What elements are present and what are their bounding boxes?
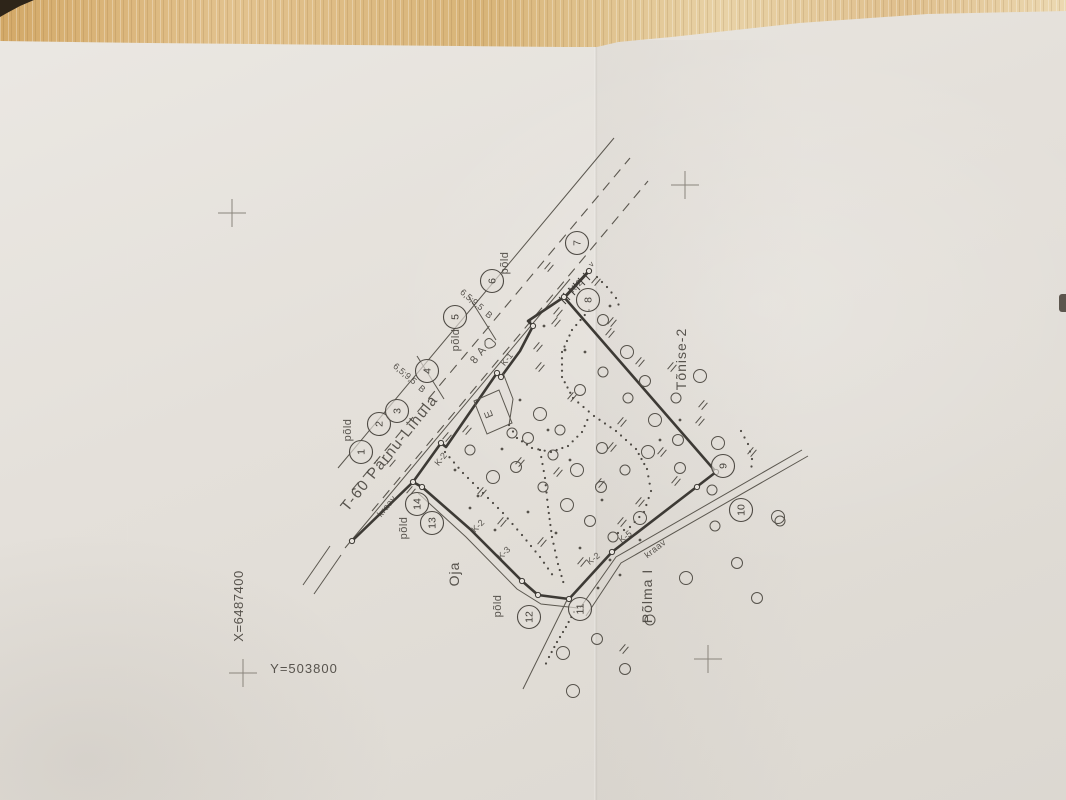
ditch-dot [588, 410, 590, 412]
ditch-dot [615, 430, 617, 432]
dot-symbol [639, 539, 642, 542]
tree-circle-symbol [710, 521, 720, 531]
ditch-dot [467, 477, 469, 479]
grass-mark-symbol [592, 276, 601, 285]
tree-circle-symbol [620, 664, 631, 675]
ditch-dot [747, 443, 749, 445]
tree-circle-symbol [487, 471, 500, 484]
grid-cross [229, 659, 257, 687]
vertex-marker [561, 294, 566, 299]
ditch-dot [564, 381, 566, 383]
ditch-dot [567, 445, 569, 447]
tree-circle-symbol [465, 445, 475, 455]
boundary-point-6: 6 [481, 270, 504, 293]
secondary-road-edge-1 [580, 450, 802, 608]
ditch-dot [572, 440, 574, 442]
dot-symbol [469, 507, 472, 510]
label-grid-y-label: Y=503800 [270, 661, 338, 676]
vertex-marker [349, 538, 354, 543]
dot-symbol [579, 547, 582, 550]
ditch-dot [448, 456, 450, 458]
grass-mark-symbol [618, 517, 627, 526]
ditch-dot [462, 472, 464, 474]
point-number: 5 [450, 314, 462, 320]
tree-circle-symbol [557, 647, 570, 660]
ditch-dot [525, 539, 527, 541]
ditch-dot [561, 370, 563, 372]
ditch-dot [571, 329, 573, 331]
label-property-name-tonise: Tõnise-2 [673, 328, 689, 390]
point-number: 6 [487, 278, 499, 284]
ditch-dot [544, 450, 546, 452]
grass-mark-symbol [568, 392, 577, 401]
ditch-dot [562, 631, 564, 633]
ditch-dot [551, 651, 553, 653]
ditch-dot [606, 286, 608, 288]
ditch-dot [584, 425, 586, 427]
boundary-point-10: 10 [730, 499, 753, 522]
tree-circle-symbol [507, 428, 517, 438]
label-property-name-polma: Põlma I [639, 569, 655, 623]
ditch-dot [502, 512, 504, 514]
tree-circle-symbol [673, 435, 684, 446]
tree-circle-symbol [598, 315, 609, 326]
ditch-dot [561, 357, 563, 359]
grass-mark-symbol [554, 307, 563, 316]
boundary-point-8: 8 [577, 289, 600, 312]
ditch-dot [497, 507, 499, 509]
ditch-dot [548, 512, 550, 514]
label-field-label-1: põld [342, 419, 354, 442]
ditch-dot [576, 436, 578, 438]
point-number: 4 [422, 368, 434, 374]
boundary-point-7: 7 [566, 232, 589, 255]
dot-symbol [527, 511, 530, 514]
label-culvert-note: v [587, 260, 596, 269]
ditch-dot [550, 530, 552, 532]
ditch-dot [553, 646, 555, 648]
ditch-dot [568, 621, 570, 623]
point-number: 12 [524, 611, 536, 623]
ditch-dot [539, 556, 541, 558]
label-grid-x-label: X=6487400 [231, 570, 246, 641]
label-field-label-4: põld [398, 517, 410, 540]
label-road-surface-note-2: B [483, 309, 494, 321]
label-field-label-5: põld [492, 595, 504, 618]
label-ditch-text-kraav-2: kraav [642, 537, 667, 560]
ditch-dot [521, 534, 523, 536]
ditch-dot [545, 662, 547, 664]
dot-symbol [584, 351, 587, 354]
ditch-dot [563, 345, 565, 347]
ditch-dot [457, 467, 459, 469]
point-number: 1 [356, 449, 368, 455]
ditch-dot [556, 641, 558, 643]
ditch-dot [546, 499, 548, 501]
stream-road-crossing [303, 546, 341, 594]
label-stream-name: Oja [446, 562, 462, 587]
ditch-dot [581, 431, 583, 433]
ditch-dot [569, 392, 571, 394]
crossing-line-1 [303, 546, 330, 585]
vertex-marker [535, 592, 540, 597]
grass-mark-symbol [606, 328, 615, 337]
ditch-dot [630, 443, 632, 445]
ditch-dot [512, 430, 514, 432]
dot-symbol [494, 529, 497, 532]
ditch-dot [559, 636, 561, 638]
label-ditch-label-k1: K-1 [498, 351, 515, 368]
ditch-dot [566, 386, 568, 388]
dot-symbol [601, 499, 604, 502]
ditch-dot [534, 550, 536, 552]
dot-symbol [609, 305, 612, 308]
ditch-dot [577, 401, 579, 403]
ditch-dot [566, 340, 568, 342]
crossing-line-2 [314, 555, 341, 594]
tree-circle-symbol [621, 346, 634, 359]
ditch-dot [575, 324, 577, 326]
grass-mark-symbol [672, 476, 681, 485]
grass-mark-symbol [536, 362, 545, 371]
dot-symbol [679, 419, 682, 422]
dot-symbol [609, 559, 612, 562]
dotted-ditches [444, 276, 753, 665]
ditch-dot [601, 281, 603, 283]
ditch-dot [582, 406, 584, 408]
grass-mark-symbol [463, 425, 472, 434]
dot-symbol [477, 495, 480, 498]
ditch-dot [561, 363, 563, 365]
ditch-dot [638, 516, 640, 518]
tree-circle-symbol [640, 376, 651, 387]
tree-circle-symbol [649, 414, 662, 427]
tree-circle-symbol [680, 572, 693, 585]
ditch-dot [649, 483, 651, 485]
tree-circle-symbol [598, 367, 608, 377]
point-number: 3 [392, 408, 404, 414]
ditch-dot [511, 523, 513, 525]
boundary-point-12: 12 [518, 606, 541, 629]
tree-circle-symbol [642, 446, 655, 459]
tree-circle-symbol [585, 516, 596, 527]
ditch-dot [648, 497, 650, 499]
ditch-dot [516, 437, 518, 439]
ditch-dot [647, 475, 649, 477]
ditch-dot [586, 419, 588, 421]
tree-circle-symbol [675, 463, 686, 474]
ditch-dot [560, 575, 562, 577]
boundary-point-11: 11 [569, 598, 592, 621]
dot-symbol [547, 429, 550, 432]
ditch-dot [492, 502, 494, 504]
right-edge-ink-mark [1059, 294, 1066, 312]
label-field-label-3: põld [499, 252, 511, 275]
point-number: 11 [575, 603, 587, 614]
photo-of-survey-map: { "colors": { "wood": "#d9b67c", "paper"… [0, 0, 1066, 800]
boundary-point-5: 5 [444, 306, 467, 329]
label-building-label: E [482, 408, 496, 419]
grass-mark-symbol [534, 342, 543, 351]
tree-circle-symbol [567, 685, 580, 698]
ditch-dot [555, 556, 557, 558]
tree-circle-symbol [523, 433, 534, 444]
highway-lines [338, 138, 648, 548]
ditch-dot [559, 569, 561, 571]
ditch-dot [609, 426, 611, 428]
dot-symbol [519, 399, 522, 402]
ditch-dot [750, 465, 752, 467]
vertex-marker [530, 323, 535, 328]
vertex-marker [519, 578, 524, 583]
point-number: 9 [718, 463, 730, 469]
grid-cross [694, 645, 722, 673]
point-number: 2 [374, 421, 386, 427]
ditch-dot [444, 451, 446, 453]
ditch-dot [541, 463, 543, 465]
ditch-dot [507, 517, 509, 519]
tree-circle-symbol [671, 393, 681, 403]
ditch-dot [557, 563, 559, 565]
ditch-dot [551, 536, 553, 538]
tree-circle-symbol [561, 499, 574, 512]
boundary-point-4: 4 [416, 360, 439, 383]
ditch-dot [643, 463, 645, 465]
vertex-marker [498, 374, 503, 379]
ditch-dot [638, 453, 640, 455]
dot-symbol [659, 439, 662, 442]
ditch-dot [598, 419, 600, 421]
ditch-dot [561, 351, 563, 353]
grass-mark-symbol [498, 517, 507, 526]
secondary-road-lines [580, 450, 808, 616]
ditch-dot [625, 439, 627, 441]
grass-mark-symbol [620, 644, 629, 653]
ditch-dot [516, 528, 518, 530]
ditch-dot [640, 458, 642, 460]
tree-circle-symbol [534, 408, 547, 421]
ditch-dot [620, 434, 622, 436]
ditch-dot [645, 504, 647, 506]
grid-cross [218, 199, 246, 227]
grass-mark-symbol [658, 447, 667, 456]
parcel-boundary [352, 297, 716, 599]
vertex-marker [694, 484, 699, 489]
label-road-width-note-1: 6,5;9,5 [391, 361, 419, 386]
ditch-dot [565, 626, 567, 628]
boundary-point-14: 14 [406, 493, 429, 516]
ditch-dot [477, 487, 479, 489]
label-ditch-label-k5: K-5 [617, 528, 634, 545]
point-number: 8 [583, 297, 595, 303]
grass-mark-symbol [636, 497, 645, 506]
boundary-point-1: 1 [350, 441, 373, 464]
dot-symbol [597, 587, 600, 590]
ditch-dot [584, 314, 586, 316]
ditch-line-k1 [503, 373, 513, 425]
point-number: 7 [572, 240, 584, 246]
grass-mark-symbol [696, 416, 705, 425]
ditch-dot [544, 477, 546, 479]
tree-circle-symbol [592, 634, 603, 645]
vertex-marker [586, 268, 591, 273]
tree-circle-symbol [732, 558, 743, 569]
ditch-dot [604, 422, 606, 424]
ditch-dot [554, 549, 556, 551]
tree-circle-symbol [548, 450, 558, 460]
ditch-dot [562, 581, 564, 583]
grass-mark-symbol [636, 357, 645, 366]
ditch-dot [551, 573, 553, 575]
ditch-dot [547, 506, 549, 508]
grass-mark-symbol [552, 317, 561, 326]
ditch-dot [487, 497, 489, 499]
tree-circle-symbol [575, 385, 586, 396]
vertex-marker [419, 484, 424, 489]
ditch-dot [610, 291, 612, 293]
ditch-dot [548, 656, 550, 658]
grass-mark-symbol [545, 262, 554, 271]
grid-cross [671, 171, 699, 199]
dot-symbol [555, 532, 558, 535]
tree-circle-symbol [555, 425, 565, 435]
ditch-dot [453, 461, 455, 463]
vertex-marker [609, 549, 614, 554]
tree-circle-symbol [712, 437, 725, 450]
grass-mark-symbol [748, 447, 757, 456]
ditch-dot [740, 430, 742, 432]
ditch-dot [568, 334, 570, 336]
ditch-dot [635, 448, 637, 450]
tree-circle-symbol [752, 593, 763, 604]
ditch-dot [549, 518, 551, 520]
ditch-dot [593, 415, 595, 417]
ditch-dot [650, 490, 652, 492]
boundary-point-3: 3 [386, 400, 409, 423]
grass-mark-symbol [554, 467, 563, 476]
vertex-marker [438, 440, 443, 445]
ditch-dot [545, 484, 547, 486]
ditch-dot [539, 449, 541, 451]
ditch-dot [646, 468, 648, 470]
ditch-dot [508, 424, 510, 426]
ditch-dot [743, 436, 745, 438]
point-number: 13 [427, 517, 439, 529]
ditch-dot [561, 376, 563, 378]
ditch-dot [543, 562, 545, 564]
ditch-dot [629, 526, 631, 528]
label-ditch-label-k3: K-3 [495, 544, 512, 561]
dot-symbol [543, 325, 546, 328]
ditch-dot [530, 545, 532, 547]
vertex-marker [410, 479, 415, 484]
tree-circle-symbol [596, 482, 607, 493]
ditch-dot [552, 543, 554, 545]
ditch-dot [540, 456, 542, 458]
point-number: 10 [736, 504, 748, 516]
dot-symbol [501, 448, 504, 451]
ditch-dot [472, 482, 474, 484]
tree-circle-symbol [694, 370, 707, 383]
ditch-dot [561, 447, 563, 449]
dot-symbol [564, 349, 567, 352]
boundary-point-13: 13 [421, 512, 444, 535]
grass-mark-symbol [618, 417, 627, 426]
dot-symbol [619, 574, 622, 577]
ditch-dot [615, 297, 617, 299]
label-road-surface-note-1: B [416, 383, 427, 395]
tree-circle-symbol [623, 393, 633, 403]
tree-circle-symbol [571, 464, 584, 477]
grass-mark-symbol [699, 400, 708, 409]
ditch-dot [751, 458, 753, 460]
grass-mark-symbol [608, 442, 617, 451]
grass-mark-symbol [538, 537, 547, 546]
ditch-dot [531, 447, 533, 449]
dot-symbol [454, 469, 457, 472]
tree-circle-symbol [707, 485, 717, 495]
ditch-dot [547, 567, 549, 569]
ditch-dot [549, 524, 551, 526]
tree-circle-symbol [538, 482, 548, 492]
ditch-dot [579, 319, 581, 321]
vertex-marker [566, 596, 571, 601]
ditch-dot [543, 470, 545, 472]
tree-circle-symbol [634, 512, 647, 525]
grass-mark-symbol [608, 317, 617, 326]
label-ditch-text-kraav-1: kraav [375, 493, 398, 518]
small-scrub-symbol [485, 339, 496, 349]
tree-circle-symbol [620, 465, 630, 475]
label-field-label-2: põld [450, 329, 462, 352]
point-number: 14 [412, 498, 424, 510]
ditch-dot [617, 303, 619, 305]
dot-symbol [569, 459, 572, 462]
cadastral-map-drawing: T-60 Pärnu-LihulapõldpõldpõldpõldpõldOja… [0, 0, 1066, 800]
boundary-point-9: 9 [712, 455, 735, 478]
tree-circle-symbol [597, 443, 608, 454]
